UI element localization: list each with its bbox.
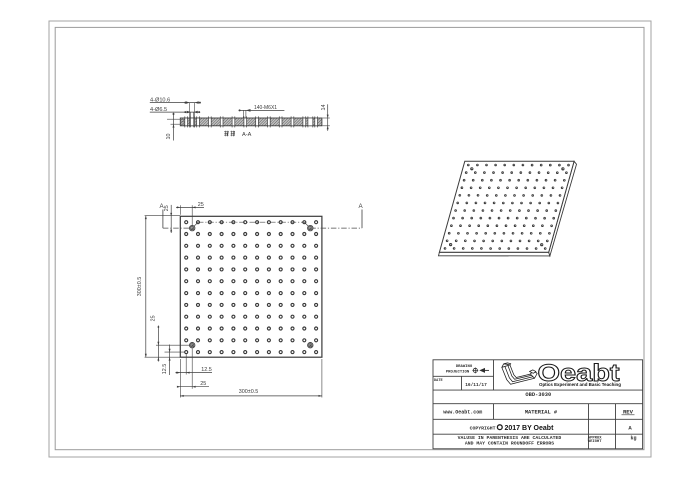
svg-text:140-M6X1: 140-M6X1 <box>254 105 277 111</box>
svg-text:2017 BY Oeabt: 2017 BY Oeabt <box>505 425 555 432</box>
svg-text:MATERIAL #: MATERIAL # <box>525 410 558 416</box>
svg-text:AND MAY CONTAIN ROUNDOFF ERROR: AND MAY CONTAIN ROUNDOFF ERRORS <box>465 441 554 447</box>
svg-text:PROJECTION: PROJECTION <box>446 370 470 374</box>
svg-text:A: A <box>359 203 364 210</box>
svg-text:www.Oeabt.com: www.Oeabt.com <box>443 409 482 415</box>
svg-text:DRAWING: DRAWING <box>456 365 473 369</box>
svg-text:Optics Experiment and Basic Te: Optics Experiment and Basic Teaching <box>539 382 621 387</box>
svg-text:A-A: A-A <box>242 132 252 138</box>
svg-text:COPYRIGHT: COPYRIGHT <box>470 425 496 431</box>
svg-text:DATE: DATE <box>434 379 443 383</box>
svg-text:16/11/17: 16/11/17 <box>465 382 487 388</box>
svg-text:12.5: 12.5 <box>201 367 212 373</box>
svg-text:25: 25 <box>200 381 206 387</box>
svg-text:REV: REV <box>623 408 634 415</box>
svg-text:10: 10 <box>166 134 172 140</box>
svg-text:A: A <box>628 424 632 431</box>
svg-text:WEIGHT: WEIGHT <box>588 440 602 444</box>
svg-text:14: 14 <box>321 105 327 111</box>
svg-text:VALUSE IN PARENTHESIS ARE CALC: VALUSE IN PARENTHESIS ARE CALCULATED <box>458 435 562 441</box>
svg-text:300±0.5: 300±0.5 <box>137 277 143 296</box>
svg-text:kg: kg <box>630 435 636 441</box>
svg-text:12.5: 12.5 <box>162 364 168 375</box>
svg-text:25: 25 <box>164 205 170 211</box>
svg-text:300±0.5: 300±0.5 <box>239 389 258 395</box>
svg-text:25: 25 <box>198 202 204 208</box>
svg-text:OBD-3030: OBD-3030 <box>525 392 551 398</box>
svg-text:25: 25 <box>151 315 157 321</box>
